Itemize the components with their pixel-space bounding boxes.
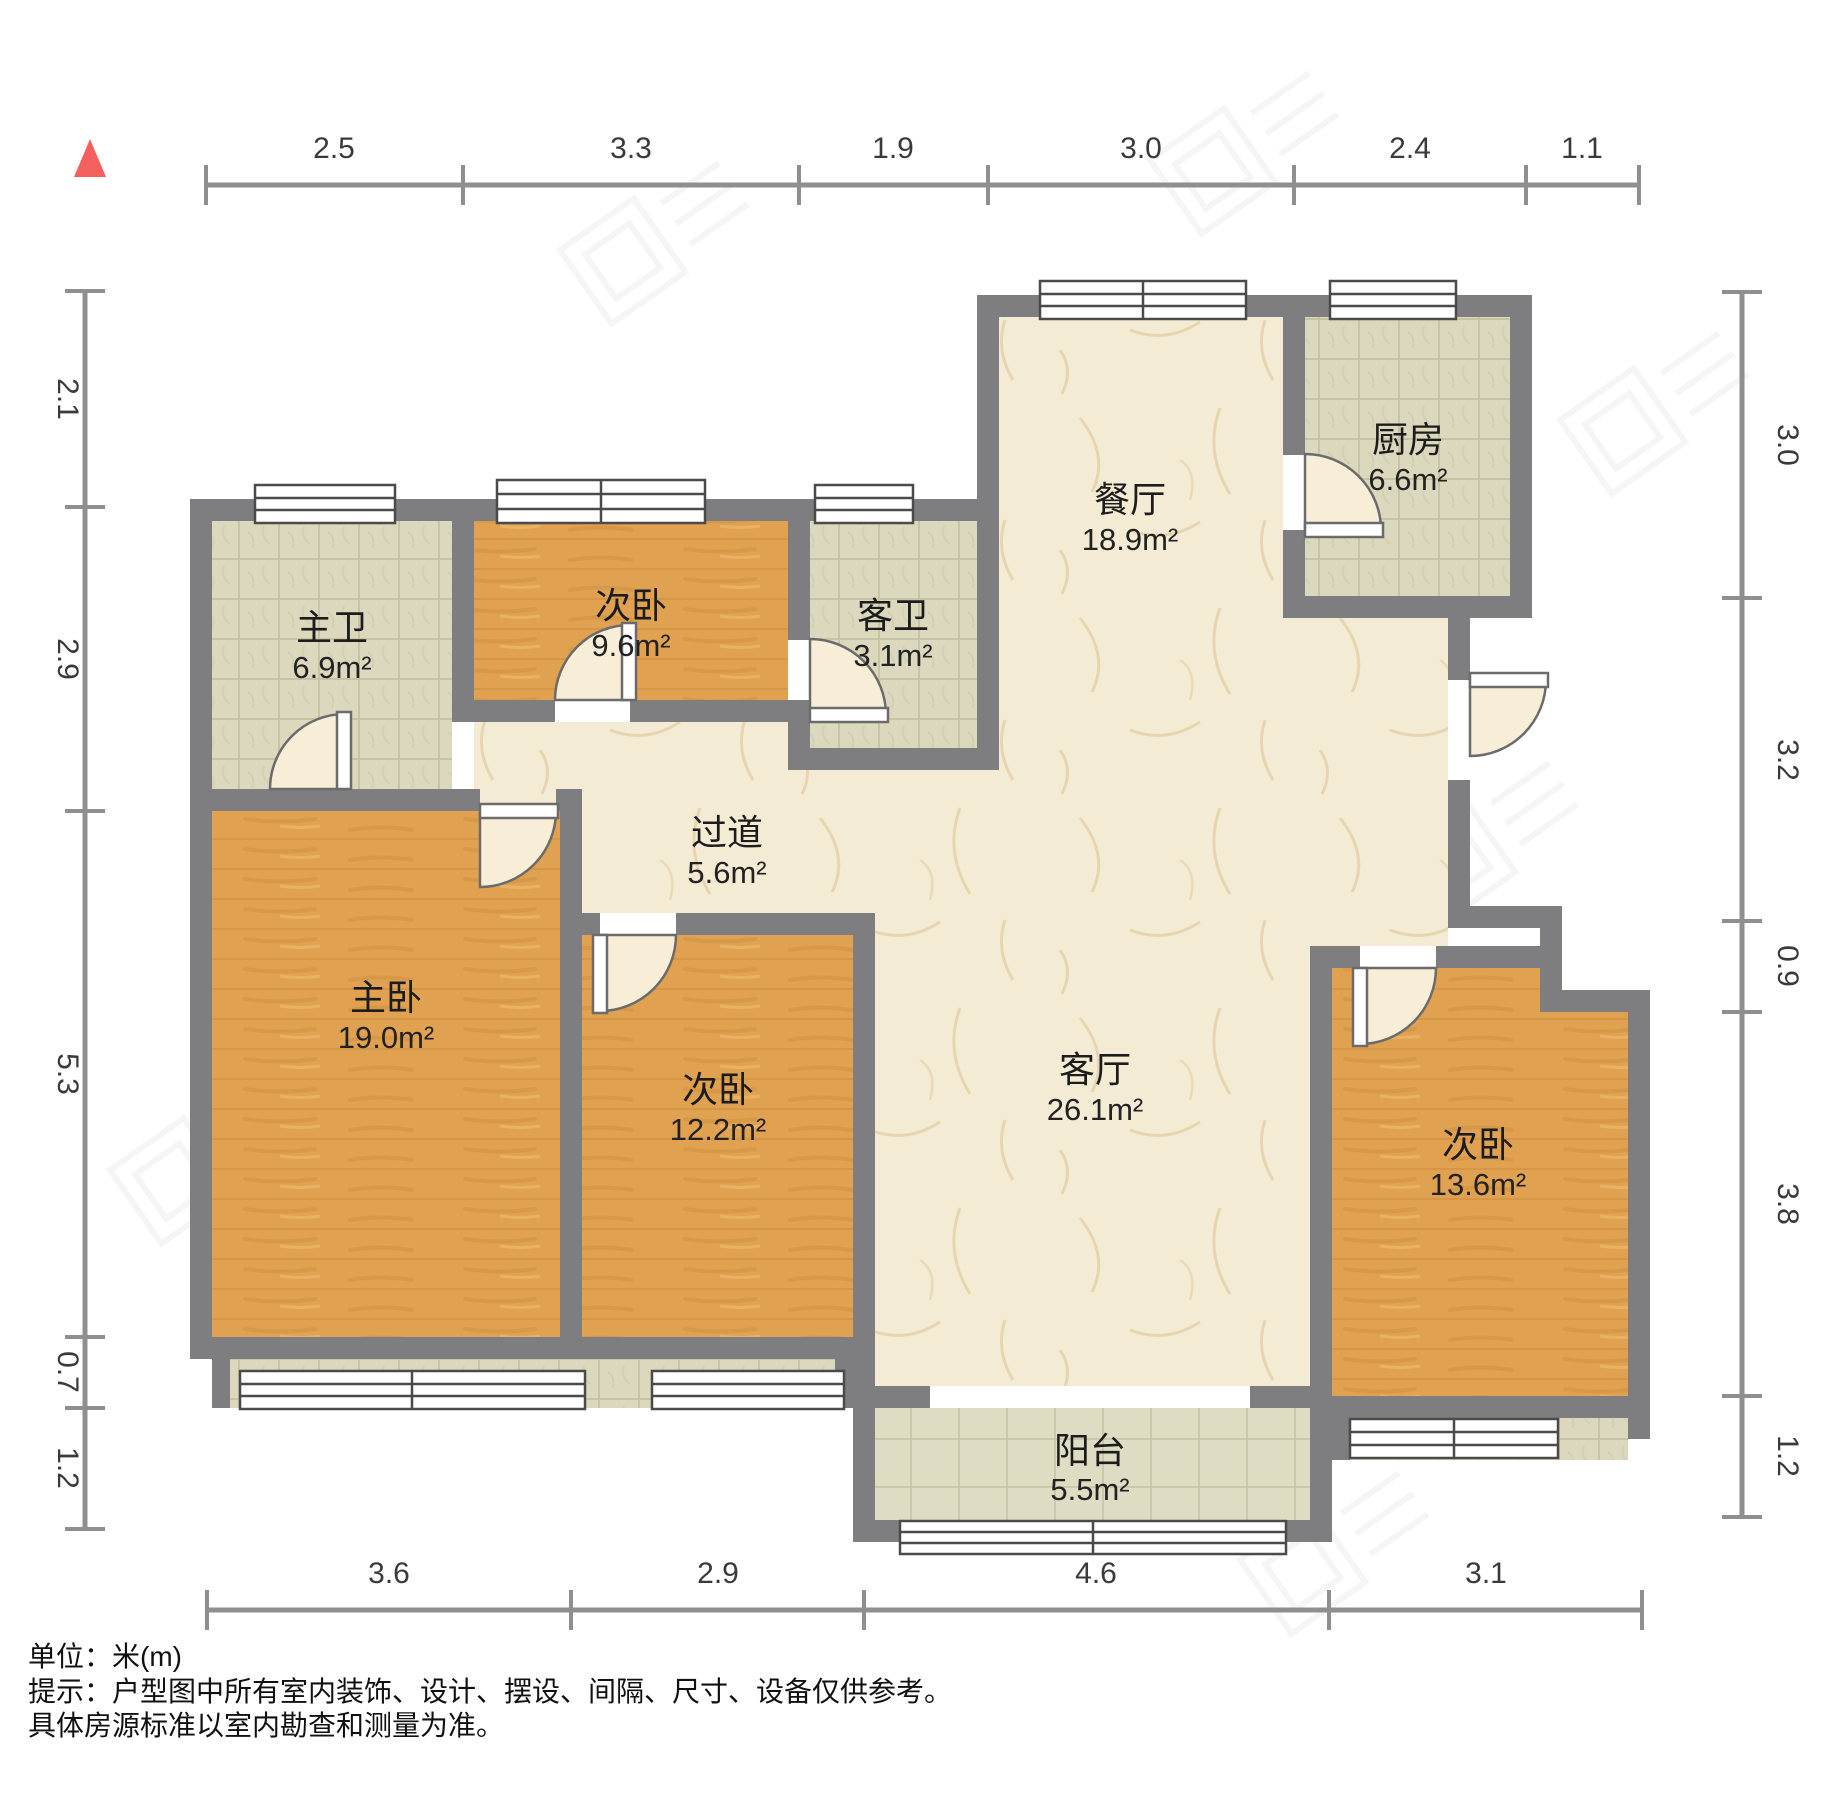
disclaimer-line2: 具体房源标准以室内勘查和测量为准。	[28, 1710, 504, 1741]
wall	[875, 1386, 930, 1408]
room-label-balcony: 阳台	[1054, 1430, 1126, 1471]
wall	[1448, 906, 1562, 928]
room-area-bedroom-top: 9.6m²	[591, 628, 670, 663]
room-label-master-bedroom: 主卧	[350, 977, 422, 1018]
wall	[977, 295, 999, 770]
dim-label-bottom: 2.9	[697, 1557, 739, 1590]
room-area-hallway: 5.6m²	[687, 855, 766, 890]
dim-label-top: 2.4	[1389, 132, 1431, 165]
wall	[1448, 780, 1470, 928]
room-label-master-bath: 主卫	[296, 607, 368, 648]
wall	[560, 789, 582, 1359]
dim-label-top: 2.5	[313, 132, 355, 165]
dim-label-left: 2.1	[51, 378, 84, 420]
room-label-living: 客厅	[1059, 1049, 1131, 1090]
room-area-master-bath: 6.9m²	[292, 650, 371, 685]
dim-bottom	[207, 1590, 1642, 1630]
dim-label-right: 3.0	[1771, 424, 1804, 466]
wall	[1283, 317, 1305, 455]
room-label-guest-bath: 客卫	[857, 595, 929, 636]
dim-label-top: 3.3	[610, 132, 652, 165]
room-label-bedroom-right: 次卧	[1442, 1124, 1514, 1165]
window-dining	[1040, 281, 1246, 319]
window-master-bedroom	[240, 1371, 585, 1409]
wall	[1436, 946, 1562, 968]
wall-bay-cap	[1332, 1418, 1350, 1460]
wall	[1628, 1012, 1650, 1439]
window-master-bath	[255, 485, 395, 523]
wall	[1250, 1386, 1310, 1408]
window-bedroom-mid	[652, 1371, 844, 1409]
room-label-bedroom-top: 次卧	[595, 585, 667, 626]
wall	[1283, 596, 1532, 618]
dim-label-right: 1.2	[1771, 1435, 1804, 1477]
dim-label-right: 3.8	[1771, 1183, 1804, 1225]
wall	[1448, 618, 1470, 680]
room-area-kitchen: 6.6m²	[1368, 462, 1447, 497]
dim-label-top: 1.9	[872, 132, 914, 165]
dim-label-top: 3.0	[1120, 132, 1162, 165]
room-area-guest-bath: 3.1m²	[853, 638, 932, 673]
window-balcony	[900, 1521, 1286, 1554]
dim-label-right: 0.9	[1771, 945, 1804, 987]
window-guest-bath	[815, 485, 913, 523]
wall	[190, 499, 212, 1359]
dim-label-bottom: 4.6	[1075, 1557, 1117, 1590]
dim-label-bottom: 3.1	[1465, 1557, 1507, 1590]
dim-label-left: 0.7	[51, 1351, 84, 1393]
floor-plan-canvas: 主卫 6.9m² 次卧 9.6m² 客卫 3.1m² 餐厅 18.9m² 厨房 …	[0, 0, 1838, 1797]
door-entry	[1470, 673, 1548, 756]
window-bedroom-top	[497, 480, 705, 523]
wall	[452, 499, 474, 722]
wall	[190, 789, 480, 811]
room-label-dining: 餐厅	[1094, 479, 1166, 520]
disclaimer-line1: 提示：户型图中所有室内装饰、设计、摆设、间隔、尺寸、设备仅供参考。	[28, 1676, 952, 1707]
wall	[1310, 1396, 1650, 1418]
wall	[1310, 946, 1332, 1542]
wall	[1562, 990, 1650, 1012]
dim-label-right: 3.2	[1771, 739, 1804, 781]
dim-label-top: 1.1	[1561, 132, 1603, 165]
wall	[190, 1337, 875, 1359]
north-triangle-icon	[74, 139, 106, 177]
wall	[582, 913, 600, 935]
window-bedroom-right	[1350, 1419, 1558, 1458]
room-area-bedroom-mid: 12.2m²	[670, 1112, 766, 1147]
room-label-bedroom-mid: 次卧	[682, 1069, 754, 1110]
dim-right	[1722, 292, 1762, 1517]
wall	[788, 748, 999, 770]
wall	[1540, 928, 1562, 1012]
dim-left	[65, 291, 105, 1529]
room-label-hallway: 过道	[691, 812, 763, 853]
floor-master-bedroom	[212, 811, 560, 1337]
footer-notes: 单位：米(m) 提示：户型图中所有室内装饰、设计、摆设、间隔、尺寸、设备仅供参考…	[28, 1641, 952, 1741]
dim-label-left: 2.9	[51, 638, 84, 680]
floor-plan-page: { "title_note": { "unit": "单位：米(m)", "li…	[0, 0, 1838, 1797]
wall	[630, 700, 810, 722]
room-label-kitchen: 厨房	[1372, 419, 1444, 460]
wall	[788, 715, 810, 770]
wall	[676, 913, 875, 935]
dim-label-left: 5.3	[51, 1053, 84, 1095]
dim-label-bottom: 3.6	[368, 1557, 410, 1590]
room-area-balcony: 5.5m²	[1050, 1472, 1129, 1507]
room-area-dining: 18.9m²	[1082, 522, 1178, 557]
wall-bay-cap	[212, 1359, 230, 1408]
room-area-master-bedroom: 19.0m²	[338, 1020, 434, 1055]
wall	[788, 499, 810, 640]
wall	[1510, 295, 1532, 618]
window-kitchen	[1330, 281, 1456, 319]
dim-top	[206, 165, 1639, 205]
room-area-living: 26.1m²	[1047, 1092, 1143, 1127]
unit-note: 单位：米(m)	[28, 1641, 182, 1672]
wall	[853, 913, 875, 1542]
wall	[1283, 530, 1305, 618]
room-area-bedroom-right: 13.6m²	[1430, 1167, 1526, 1202]
dim-label-left: 1.2	[51, 1447, 84, 1489]
